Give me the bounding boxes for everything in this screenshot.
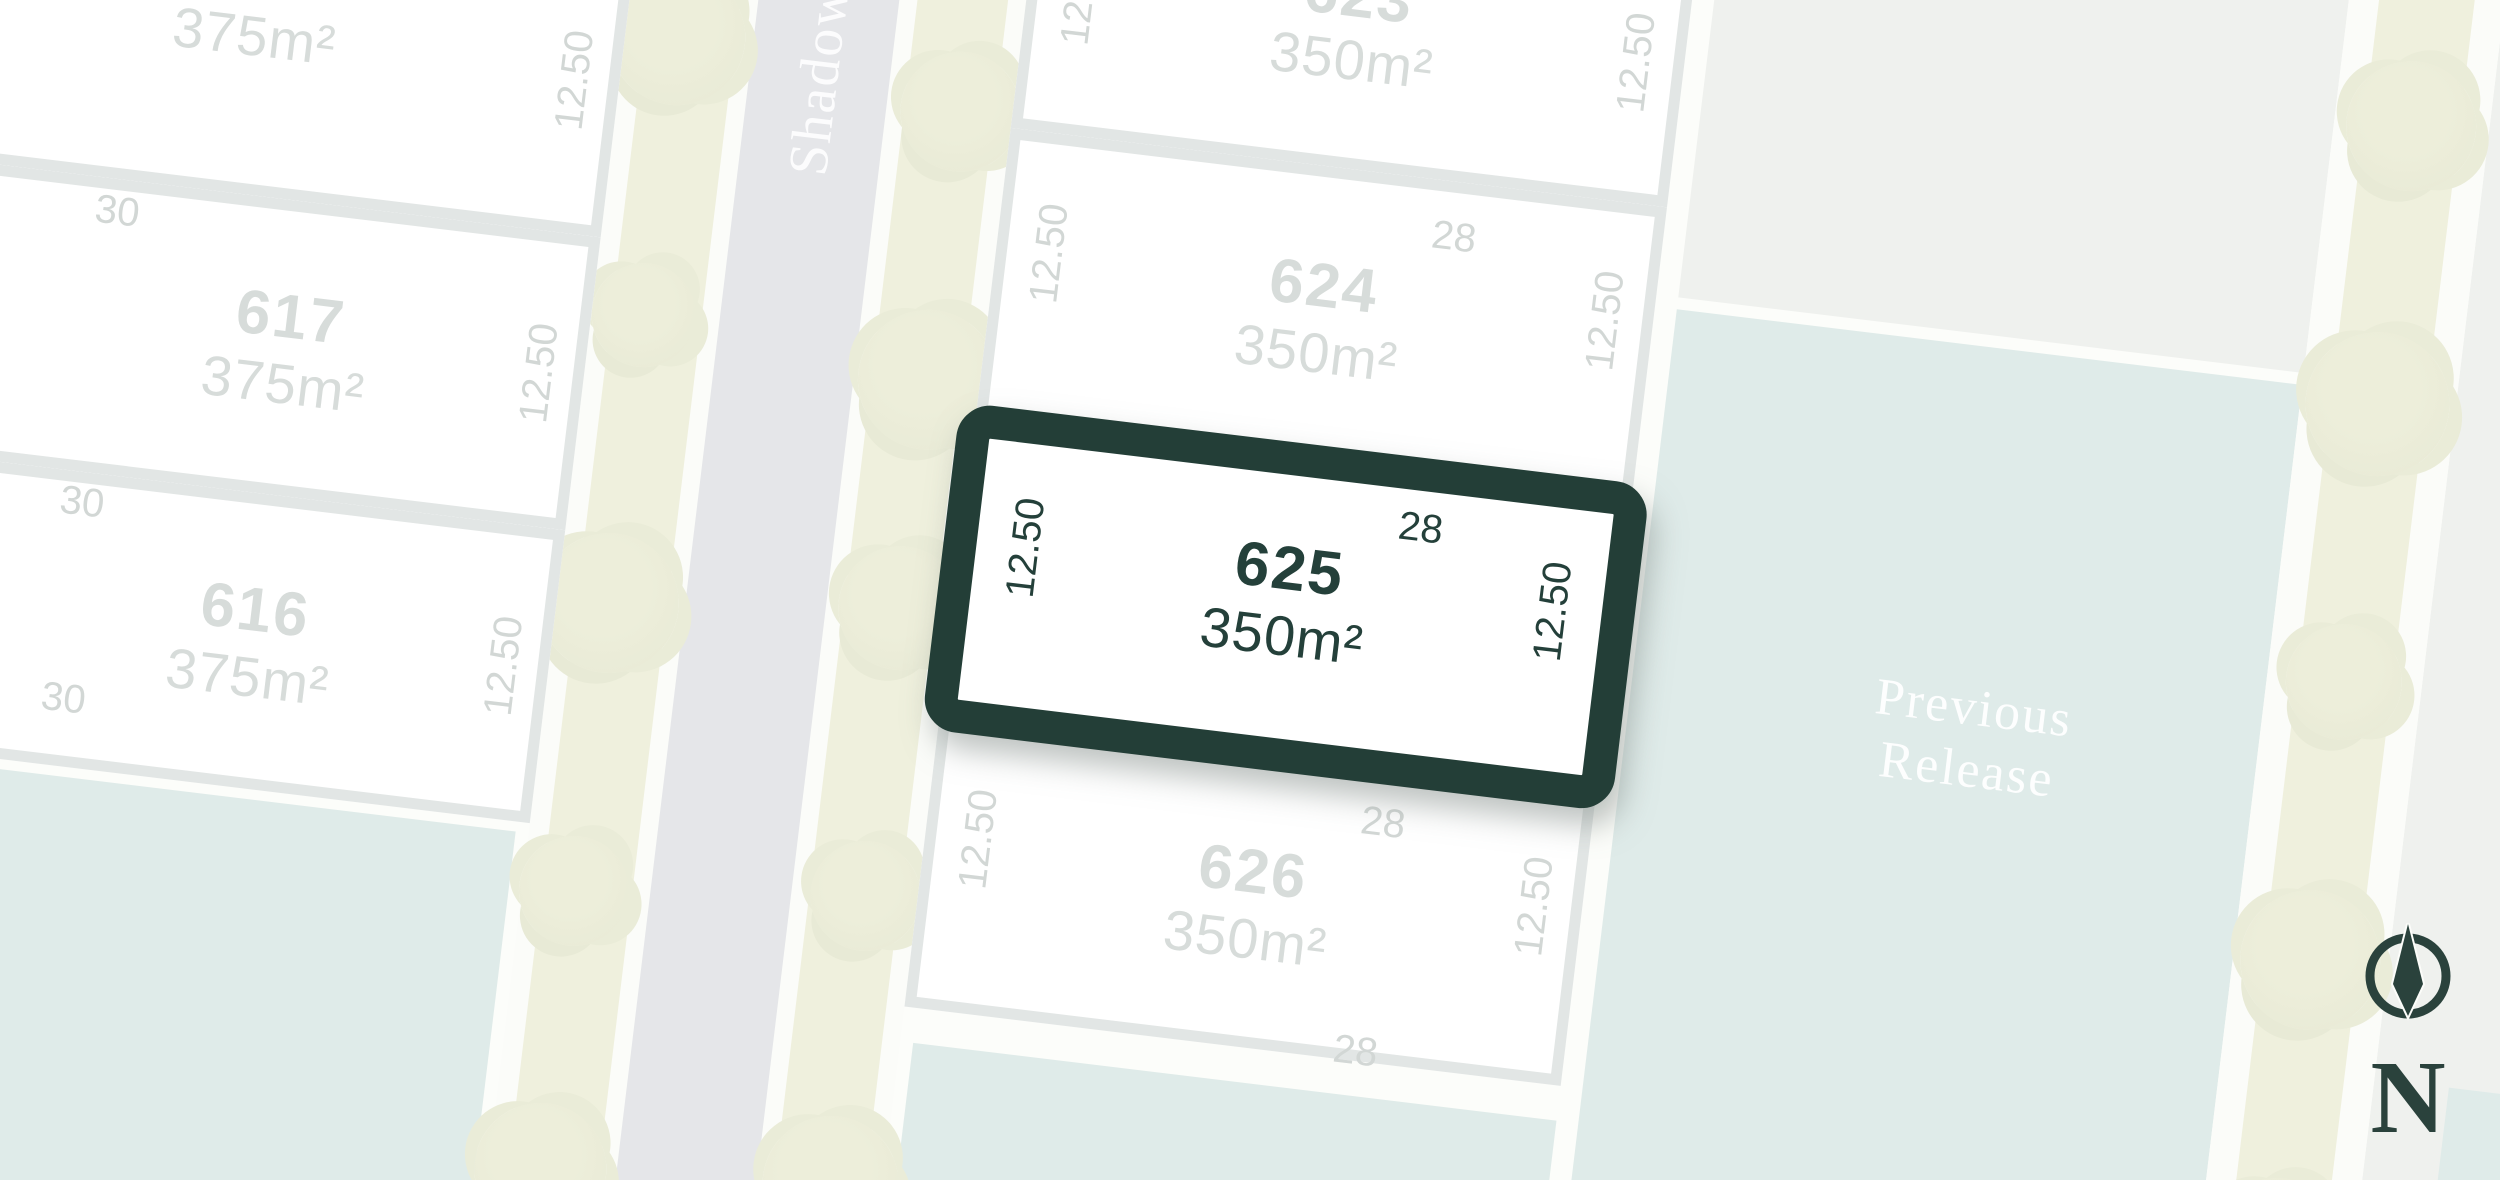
masterplan-map: 375m² 617 375m² 616 375m² 30 30 30 12.50… xyxy=(0,0,2500,1180)
dim-frontage-625: 28 xyxy=(1396,506,1445,551)
lot-617-number: 617 xyxy=(233,280,349,355)
lot-624-number: 624 xyxy=(1266,249,1382,324)
compass-needle-icon xyxy=(2348,900,2468,1030)
dim-depth-bottom: 30 xyxy=(39,676,88,721)
dim-frontage-626-bottom: 28 xyxy=(1331,1028,1380,1073)
lot-625-number: 625 xyxy=(1232,532,1348,607)
dim-frontage-624: 28 xyxy=(1429,214,1478,259)
dim-depth-616: 30 xyxy=(58,480,107,525)
lot-616-number: 616 xyxy=(197,573,313,648)
dim-depth-617: 30 xyxy=(93,189,142,234)
compass-north-letter: N xyxy=(2348,1038,2468,1157)
dim-frontage-626: 28 xyxy=(1359,800,1408,845)
rotated-plan-canvas: 375m² 617 375m² 616 375m² 30 30 30 12.50… xyxy=(0,0,2500,1180)
north-compass: N xyxy=(2348,900,2468,1160)
lot-626-number: 626 xyxy=(1195,835,1311,910)
previous-release-label: Previous Release xyxy=(1865,666,2076,813)
